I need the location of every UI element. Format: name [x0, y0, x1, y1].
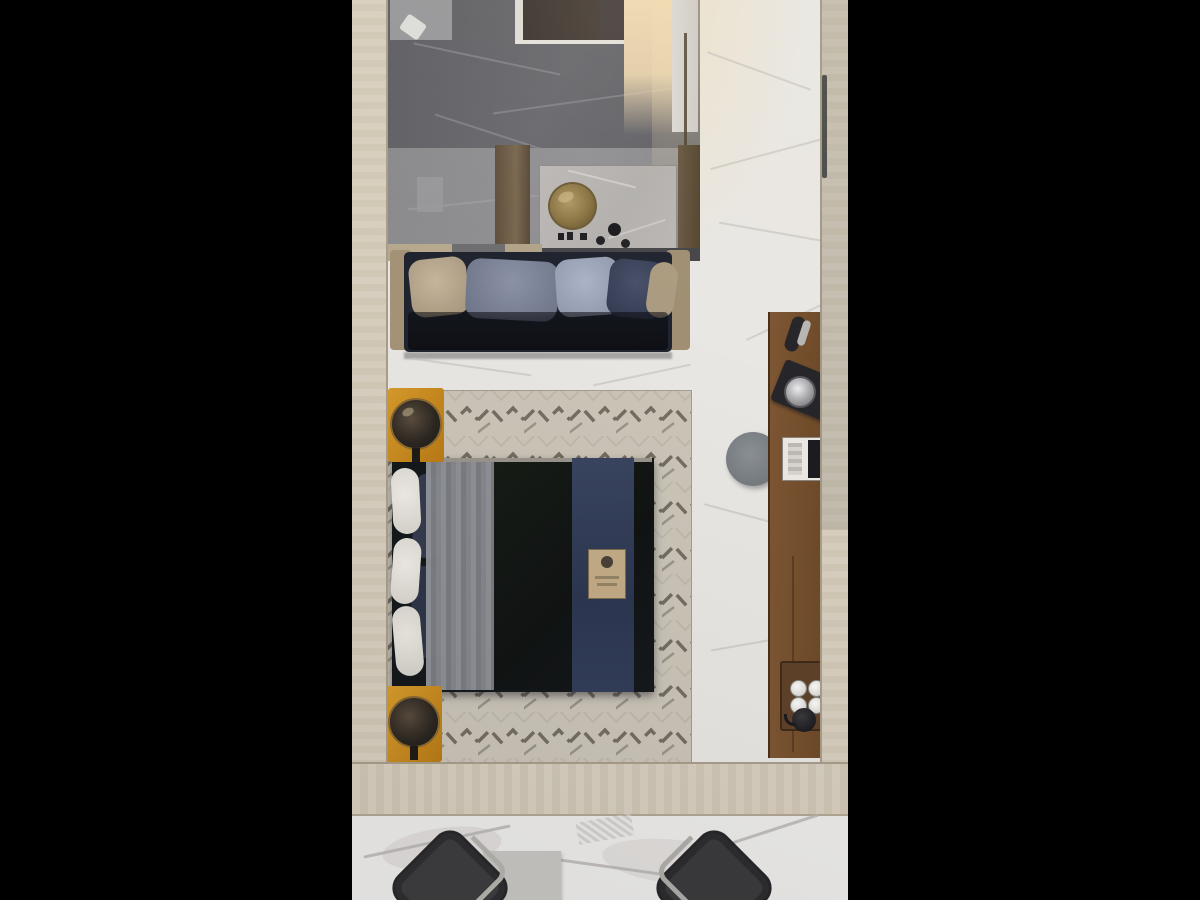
bed-card-textline [597, 583, 617, 586]
table-lamp [390, 398, 442, 450]
marble-vein [593, 364, 691, 387]
shower-drain [417, 177, 443, 212]
metal-bowl [784, 376, 816, 408]
vanity-post-left [495, 145, 530, 258]
telephone-keys [788, 443, 802, 475]
bed-pillow-white [390, 537, 423, 605]
lamp-stem [410, 746, 418, 760]
lamp-stem [412, 448, 420, 462]
render-photo [352, 0, 848, 900]
faucet-knob [580, 233, 587, 240]
counter-dot [596, 236, 605, 245]
entry-door [523, 0, 600, 42]
coffee-cup [790, 680, 807, 697]
counter-dot [608, 223, 621, 236]
door-frame-strip [515, 0, 523, 44]
counter-dot [621, 239, 630, 248]
bed-throw-blanket [426, 462, 494, 690]
letterbox-background [0, 0, 1200, 900]
sofa-seat-shadow [408, 312, 668, 350]
bed-pillow-white [390, 467, 421, 534]
table-lamp [388, 696, 440, 748]
faucet-knob [558, 233, 564, 240]
vanity-post-right [678, 145, 700, 258]
bed-card-textline [595, 576, 619, 579]
bed-card-logo [601, 556, 613, 568]
sofa-floor-shadow [404, 352, 672, 359]
door-handle [822, 75, 827, 178]
faucet-knob [567, 232, 573, 240]
sofa-pillow-tan [407, 255, 471, 319]
bottom-wall [352, 762, 848, 816]
sink-basin [548, 182, 597, 230]
marble-vein [412, 358, 531, 377]
